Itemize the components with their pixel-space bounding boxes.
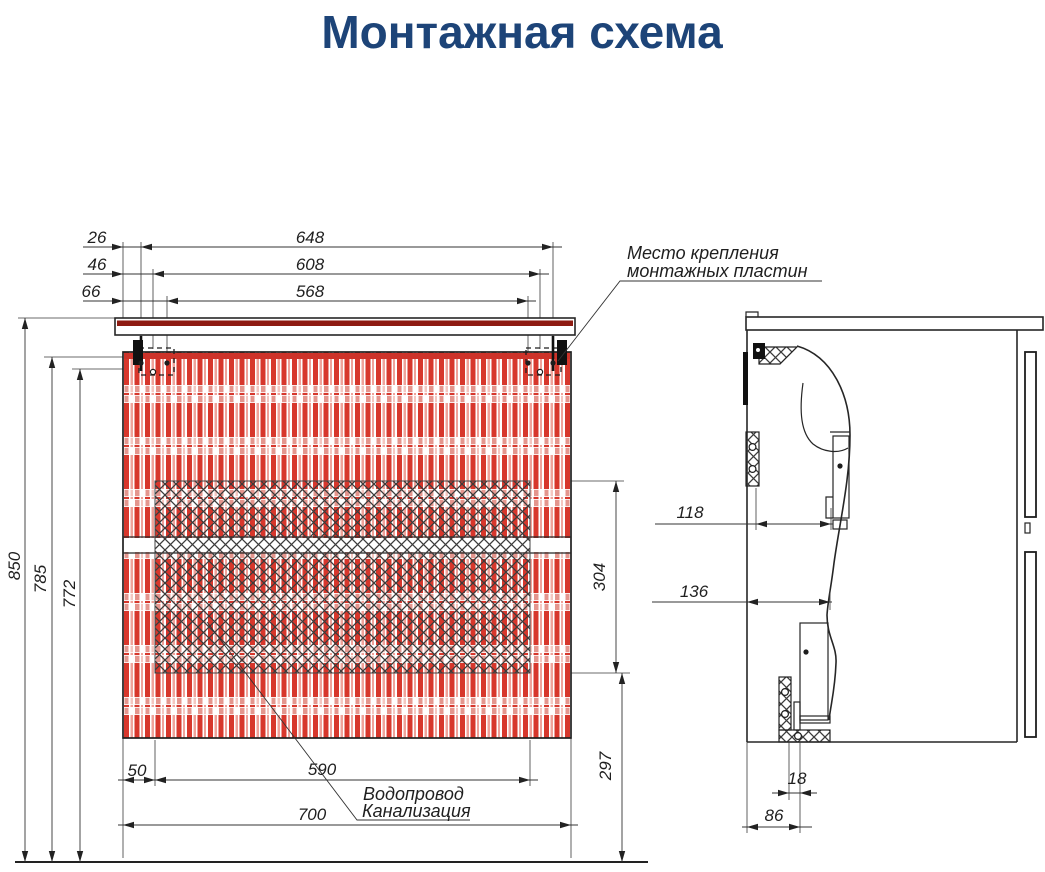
dim-recess-297: 297 xyxy=(596,751,615,781)
dim-height-772: 772 xyxy=(60,579,79,608)
page-title: Монтажная схема xyxy=(321,6,723,58)
front-view: 26 46 66 648 608 568 50 590 700 850 785 … xyxy=(5,228,822,862)
utilities-callout-line2: Канализация xyxy=(362,801,471,821)
drawer-recess-hatch xyxy=(155,481,530,673)
dim-recess-304: 304 xyxy=(590,563,609,591)
wall-rail-lower xyxy=(779,677,791,730)
installation-drawing: Монтажная схема xyxy=(0,0,1045,872)
dim-height-850: 850 xyxy=(5,551,24,580)
side-drawer-fronts xyxy=(1025,352,1036,737)
dim-bottom-50: 50 xyxy=(128,761,147,780)
side-countertop xyxy=(746,312,1043,330)
dim-bottom-700: 700 xyxy=(298,805,327,824)
dim-offset-26: 26 xyxy=(87,228,107,247)
dim-height-785: 785 xyxy=(31,564,50,593)
dim-pipe-18: 18 xyxy=(788,769,807,788)
dim-bottom-590: 590 xyxy=(308,760,337,779)
mounting-callout-line1: Место крепления xyxy=(627,243,779,263)
side-mounting-plate xyxy=(743,352,748,405)
side-view: 118 136 18 86 xyxy=(652,312,1043,833)
dim-width-608: 608 xyxy=(296,255,325,274)
countertop-edge-band xyxy=(117,321,573,327)
countertop xyxy=(115,318,575,335)
dim-depth-118: 118 xyxy=(676,503,704,522)
dim-depth-136: 136 xyxy=(680,582,709,601)
mounting-callout: Место крепления монтажных пластин xyxy=(558,243,822,361)
bottom-panel-hatch xyxy=(779,730,830,742)
drawer-rail-upper xyxy=(826,436,849,529)
mounting-callout-line2: монтажных пластин xyxy=(627,261,808,281)
bottom-panel-hole xyxy=(795,733,802,740)
basin-fixing-hole xyxy=(756,348,760,352)
dim-pipe-86: 86 xyxy=(765,806,784,825)
drawer-rail-lower xyxy=(794,623,830,730)
dim-width-568: 568 xyxy=(296,282,325,301)
wall-rail-upper xyxy=(746,432,759,486)
dim-width-648: 648 xyxy=(296,228,325,247)
dim-offset-46: 46 xyxy=(88,255,107,274)
panel-top-strip xyxy=(124,353,570,359)
installation-scheme-page: Монтажная схема xyxy=(0,0,1045,872)
dim-offset-66: 66 xyxy=(82,282,101,301)
